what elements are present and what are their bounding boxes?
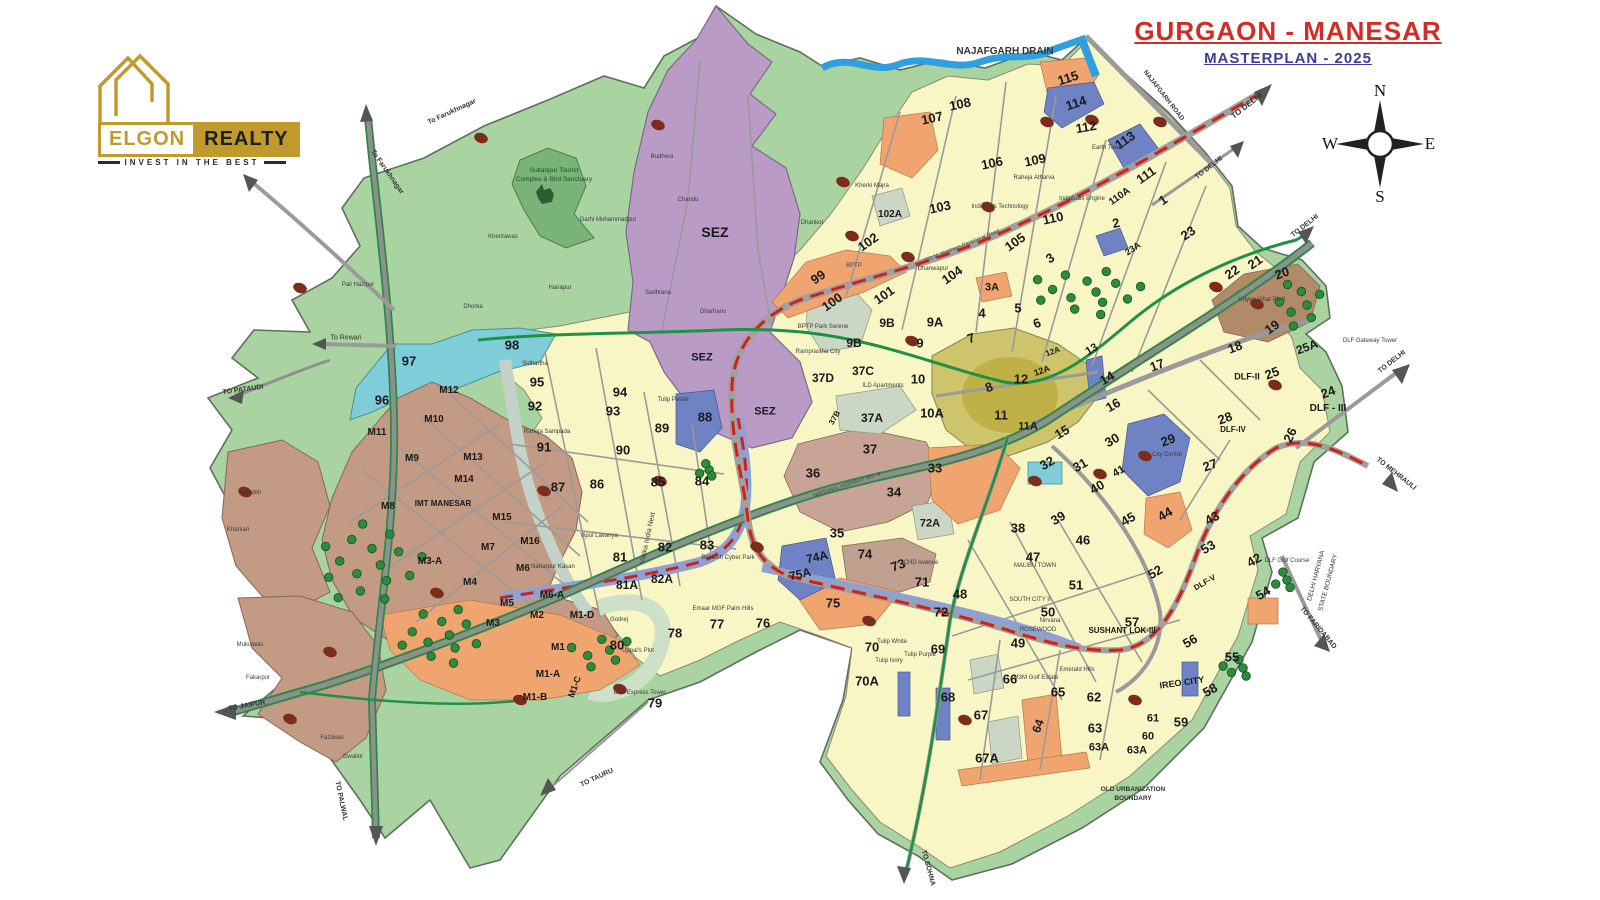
logo-text-elgon: ELGON bbox=[98, 122, 196, 157]
rewari-road bbox=[318, 344, 396, 346]
elgon-realty-logo: ELGON REALTY INVEST IN THE BEST bbox=[88, 50, 298, 170]
compass-s-label: S bbox=[1375, 187, 1384, 206]
logo-tagline: INVEST IN THE BEST bbox=[125, 158, 260, 167]
compass-e-label: E bbox=[1425, 134, 1435, 153]
house-icon bbox=[92, 50, 184, 128]
map-title-block: GURGAON - MANESAR MASTERPLAN - 2025 bbox=[1118, 16, 1458, 67]
map-regions bbox=[208, 6, 1348, 880]
compass-w-label: W bbox=[1322, 134, 1339, 153]
logo-text-realty: REALTY bbox=[196, 122, 300, 157]
tagline-dash-left bbox=[98, 161, 120, 164]
page-subtitle: MASTERPLAN - 2025 bbox=[1118, 50, 1458, 67]
to-faridabad-road bbox=[1282, 556, 1322, 642]
compass-rose: N S E W bbox=[1322, 81, 1435, 206]
west-brown-1 bbox=[222, 440, 330, 608]
page-title: GURGAON - MANESAR bbox=[1118, 16, 1458, 47]
tagline-dash-right bbox=[264, 161, 286, 164]
compass-n-label: N bbox=[1374, 81, 1386, 100]
